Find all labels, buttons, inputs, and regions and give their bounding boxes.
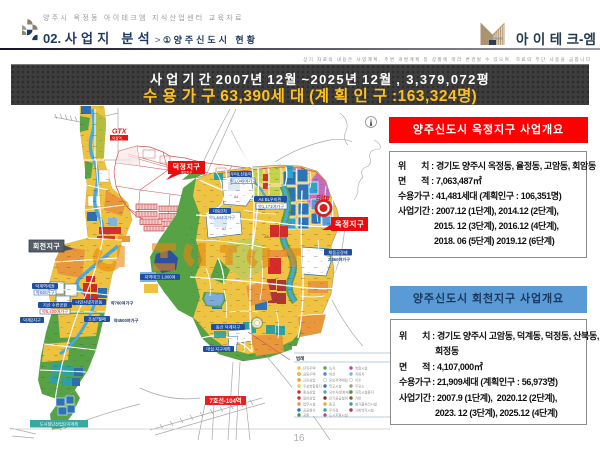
svg-text:기산 수변공원: 기산 수변공원 xyxy=(43,302,67,309)
svg-text:자족시설용지: 자족시설용지 xyxy=(355,390,374,395)
svg-text:GTX: GTX xyxy=(112,129,128,136)
svg-text:조성7월메: 조성7월메 xyxy=(88,316,106,323)
svg-text:우미L신동아: 우미L신동아 xyxy=(230,171,252,178)
svg-text:도시지원시설: 도시지원시설 xyxy=(329,413,348,418)
svg-text:저류지: 저류지 xyxy=(355,372,364,377)
svg-text:복합시설: 복합시설 xyxy=(355,366,367,371)
svg-text:유보지역예정: 유보지역예정 xyxy=(329,378,348,383)
svg-text:중심상업: 중심상업 xyxy=(303,390,315,395)
svg-text:공동주택: 공동주택 xyxy=(303,372,315,377)
svg-text:하천: 하천 xyxy=(329,372,335,377)
svg-text:주상복합용지: 주상복합용지 xyxy=(303,384,322,389)
svg-text:덕정역: 덕정역 xyxy=(112,136,122,141)
svg-text:주차장: 주차장 xyxy=(329,408,338,413)
svg-text:A4 BL우미린: A4 BL우미린 xyxy=(259,196,282,203)
svg-text:대실 지구계획: 대실 지구계획 xyxy=(206,346,230,353)
svg-text:근린상업: 근린상업 xyxy=(303,378,315,383)
svg-text:7호선-104역: 7호선-104역 xyxy=(210,397,242,405)
svg-text:공원: 공원 xyxy=(303,413,309,418)
svg-text:약1,444여가구: 약1,444여가구 xyxy=(209,214,235,221)
svg-text:전기공급설비: 전기공급설비 xyxy=(329,396,348,401)
svg-text:약1,171여가구: 약1,171여가구 xyxy=(258,203,284,210)
svg-text:나인시냇가본동: 나인시냇가본동 xyxy=(76,299,103,306)
svg-text:공공청사: 공공청사 xyxy=(303,408,316,413)
svg-text:약848가구: 약848가구 xyxy=(36,289,55,296)
svg-text:업무시설: 업무시설 xyxy=(303,402,315,407)
svg-text:채움공경제: 채움공경제 xyxy=(328,249,347,256)
svg-text:2,860여가구: 2,860여가구 xyxy=(328,256,350,263)
svg-text:단독주택: 단독주택 xyxy=(303,366,315,371)
svg-text:약760여가구: 약760여가구 xyxy=(111,300,134,307)
svg-text:덕계2지구: 덕계2지구 xyxy=(23,317,41,324)
svg-text:도시첨단산업단지계획: 도시첨단산업단지계획 xyxy=(40,421,79,428)
svg-text:일반상업: 일반상업 xyxy=(303,396,315,401)
svg-text:덕계역세권: 덕계역세권 xyxy=(35,283,54,290)
svg-text:지역데크 1,000여: 지역데크 1,000여 xyxy=(145,274,176,281)
svg-text:학교시설: 학교시설 xyxy=(329,384,341,389)
svg-text:약5,400여가구: 약5,400여가구 xyxy=(42,308,68,315)
svg-text:이주: 이주 xyxy=(355,378,361,383)
svg-text:회천지구: 회천지구 xyxy=(33,242,61,251)
svg-text:폐기물처리시설: 폐기물처리시설 xyxy=(355,402,377,407)
svg-text:대림3차: 대림3차 xyxy=(213,208,227,215)
svg-text:유수지/문화재정: 유수지/문화재정 xyxy=(329,390,352,395)
svg-text:녹지: 녹지 xyxy=(329,366,335,371)
svg-text:예정지구: 예정지구 xyxy=(181,170,192,175)
svg-text:종교: 종교 xyxy=(329,403,335,407)
svg-text:주유소: 주유소 xyxy=(355,384,364,389)
svg-text:기반: 기반 xyxy=(355,396,361,401)
svg-text:동산 덕계지구: 동산 덕계지구 xyxy=(216,324,240,331)
svg-text:약4500여가구: 약4500여가구 xyxy=(114,317,139,324)
svg-text:사회복지시설: 사회복지시설 xyxy=(355,408,374,413)
svg-text:약1,049여가구: 약1,049여가구 xyxy=(230,178,256,185)
svg-text:옥정지구: 옥정지구 xyxy=(335,219,365,229)
svg-text:범례: 범례 xyxy=(296,355,304,362)
